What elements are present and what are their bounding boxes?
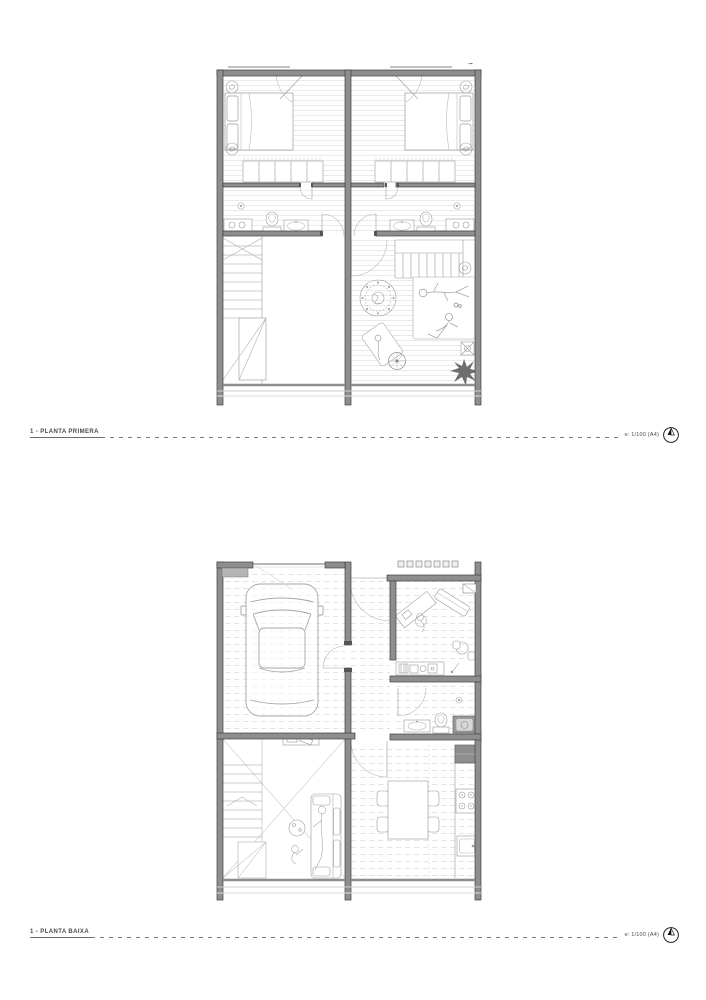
corner-marker — [468, 63, 474, 64]
staircase-left — [223, 236, 266, 385]
bed-right — [405, 93, 473, 150]
stove — [456, 789, 477, 813]
staircase-ground — [223, 739, 266, 878]
figure-label-baixa: 1 - PLANTA BAIXA — [30, 929, 91, 938]
planta-baixa-drawing — [215, 555, 485, 905]
north-compass-icon — [662, 926, 680, 944]
side-table-person — [289, 820, 305, 864]
figure-label-primera: 1 - PLANTA PRIMERA — [30, 429, 101, 438]
sofa — [311, 794, 341, 878]
daybed-and-people — [413, 277, 475, 339]
scale-label-primera: e: 1/100 (A4) — [625, 432, 659, 438]
wardrobe-left — [243, 159, 323, 182]
figure-caption-primera: 1 - PLANTA PRIMERA e: 1/100 (A4) — [30, 424, 680, 438]
corner-fixture — [463, 584, 476, 593]
staircase-right — [395, 240, 475, 278]
dining-table — [388, 781, 428, 839]
door-jambs — [344, 641, 352, 672]
separator-dashed-line — [101, 437, 621, 438]
wardrobe-right — [375, 159, 455, 182]
car — [241, 584, 323, 716]
north-compass-icon — [662, 426, 680, 444]
scale-label-baixa: e: 1/100 (A4) — [625, 932, 659, 938]
figure-caption-baixa: 1 - PLANTA BAIXA e: 1/100 (A4) — [30, 924, 680, 938]
planta-primera-drawing — [215, 63, 485, 413]
separator-dashed-line — [91, 937, 621, 938]
bed-left — [225, 93, 293, 150]
glass-block-row — [398, 561, 458, 567]
drawing-sheet: { "page": { "background": "#ffffff" }, "… — [0, 0, 706, 1000]
